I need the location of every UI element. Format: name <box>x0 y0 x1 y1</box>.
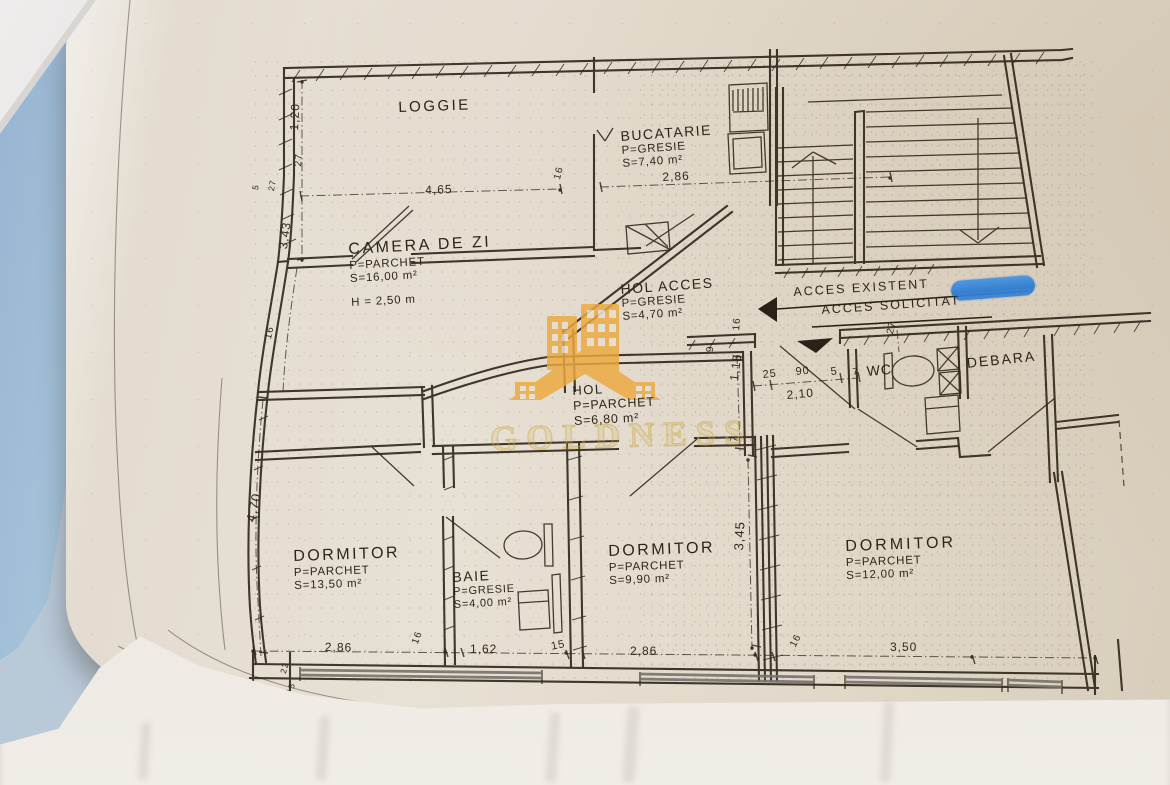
kitchen-door-mark <box>597 128 613 141</box>
dim-label: 1,62 <box>470 642 497 656</box>
room-label-baie: BAIE P=GRESIE S=4,00 m² <box>452 566 516 611</box>
dim-label: 3,50 <box>890 640 917 654</box>
room-label-dormitor-3: DORMITOR P=PARCHET S=12,00 m² <box>845 534 957 582</box>
bathroom-fixtures <box>518 524 562 633</box>
dim-label: 2,86 <box>630 644 657 658</box>
dim-label: 27 <box>266 179 278 192</box>
room-label-hol-acces: HOL ACCES P=GRESIE S=4,70 m² <box>620 275 716 323</box>
room-label-loggie: LOGGIE <box>398 96 471 116</box>
room-label-dormitor-1: DORMITOR P=PARCHET S=13,50 m² <box>293 544 401 592</box>
dashed-boundary <box>1119 420 1124 486</box>
stair-landing <box>808 95 1002 102</box>
dim-label: 16 <box>731 317 743 331</box>
baie-toilet-icon <box>503 530 542 560</box>
dim-label: 1,20 <box>287 103 302 131</box>
room-label-bucatarie: BUCATARIE P=GRESIE S=7,40 m² <box>620 122 714 170</box>
dim-label: 9 <box>705 345 716 352</box>
room-name: DORMITOR <box>608 539 715 561</box>
dim-label: 2,86 <box>325 640 353 654</box>
room-label-wc: WC <box>866 361 893 379</box>
stair-down-arrow <box>960 118 999 243</box>
stair-treads-left <box>778 145 853 260</box>
dim-label: 2,10 <box>786 386 814 402</box>
dim-label: 90 <box>795 365 810 378</box>
room-name: BAIE <box>452 566 514 585</box>
room-name: LOGGIE <box>398 96 471 116</box>
hatched-partition <box>937 347 961 395</box>
dim-label: 25 <box>762 368 777 381</box>
dim-label: 3,45 <box>731 521 748 551</box>
room-label-dormitor-2: DORMITOR P=PARCHET S=9,90 m² <box>608 539 716 587</box>
dim-label: 2,86 <box>662 169 690 184</box>
photo-of-floor-plan: GOLDNESS LOGGIE BUCATARIE P=GRESIE S=7,4… <box>0 0 1170 785</box>
stair-up-arrow <box>792 152 836 263</box>
room-name: DORMITOR <box>293 544 400 566</box>
room-label-hol: HOL P=PARCHET S=6,80 m² <box>572 379 656 428</box>
arrow-left-icon <box>758 297 777 322</box>
wc-sink <box>925 395 960 434</box>
arrow-down-icon <box>797 338 833 353</box>
room-name: WC <box>866 361 893 379</box>
dim-label: 27 <box>293 153 305 167</box>
dim-label: 5 <box>830 365 838 378</box>
wc-toilet-icon <box>891 355 935 388</box>
dim-label: 4,65 <box>425 182 453 197</box>
room-label-camera-de-zi: CAMERA DE ZI P=PARCHET S=16,00 m² H = 2,… <box>348 234 494 309</box>
room-name: DORMITOR <box>845 534 956 556</box>
kitchen-fixtures-icon <box>728 83 768 174</box>
dim-label: 7 <box>852 366 859 378</box>
